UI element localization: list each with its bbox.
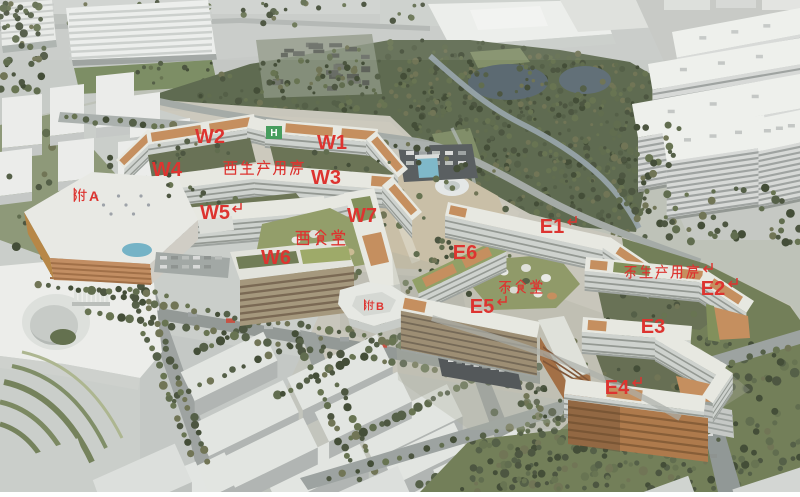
svg-text:E4: E4 — [605, 377, 630, 399]
svg-text:A: A — [89, 188, 99, 204]
svg-text:W2: W2 — [195, 126, 225, 148]
svg-text:W5: W5 — [200, 202, 230, 224]
svg-text:W3: W3 — [311, 167, 341, 189]
svg-text:W1: W1 — [317, 132, 347, 154]
svg-text:E6: E6 — [453, 242, 477, 264]
svg-text:B: B — [376, 301, 384, 313]
svg-text:W7: W7 — [347, 205, 377, 227]
svg-text:E5: E5 — [470, 296, 494, 318]
svg-text:E2: E2 — [701, 278, 725, 300]
svg-text:E1: E1 — [540, 216, 564, 238]
svg-text:W4: W4 — [152, 159, 183, 181]
svg-text:W6: W6 — [261, 247, 291, 269]
svg-text:E3: E3 — [641, 316, 665, 338]
